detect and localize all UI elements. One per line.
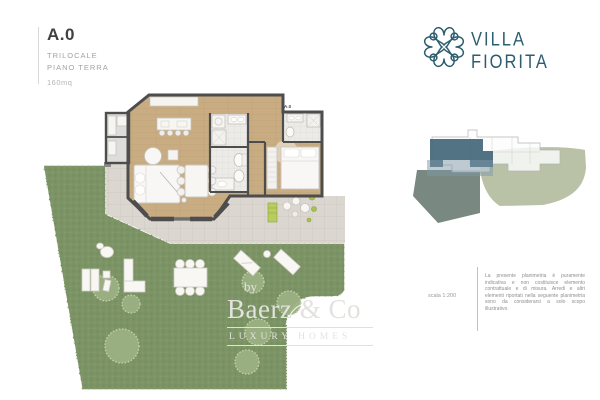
plan-unit-label: A.0 [284, 104, 292, 109]
stool [159, 130, 165, 136]
wardrobe [267, 147, 277, 189]
garden-sofa [124, 281, 145, 292]
brand-name-line1: VILLA [471, 29, 549, 51]
stool [183, 130, 189, 136]
pillow [301, 149, 316, 157]
disclaimer-text: La presente planimetria è puramente indi… [485, 273, 585, 313]
stool [175, 130, 181, 136]
header-divider [38, 27, 39, 84]
watermark-name: Baerz & Co [227, 295, 373, 324]
plant [307, 218, 311, 222]
small-table [292, 211, 298, 217]
header: A.0 TRILOCALE PIANO TERRA 160mq [47, 26, 109, 87]
unit-code: A.0 [47, 26, 109, 43]
bedroom [267, 140, 319, 189]
brand-flower-icon [419, 21, 469, 73]
siteplan-terrace-highlight [427, 160, 493, 176]
garden-sofa [124, 259, 133, 284]
sofa [134, 165, 180, 203]
unit-floor: PIANO TERRA [47, 62, 109, 74]
dining-table [185, 165, 208, 197]
kitchen-island [157, 118, 191, 130]
bathroom-topright [284, 113, 321, 141]
stool [167, 130, 173, 136]
siteplan-garden-dark [413, 170, 480, 223]
watermark: by Baerz & Co LUXURY HOMES [227, 280, 373, 346]
plant [312, 207, 317, 212]
unit-area: 160mq [47, 78, 109, 87]
armchair [145, 148, 162, 165]
green-lounger [268, 203, 277, 222]
bathroom-central [211, 114, 247, 191]
round-chair [283, 202, 291, 210]
side-table [168, 150, 178, 160]
legend-divider [477, 267, 478, 331]
brochure-page: A.0 A.0 TRILOCALE PIA [0, 0, 600, 400]
watermark-tagline: LUXURY HOMES [227, 327, 373, 346]
brand-name-line2: FIORITA [471, 51, 549, 73]
kitchen-counter [150, 97, 198, 106]
round-chair [301, 204, 310, 213]
garden-lounger [91, 269, 99, 291]
round-chair [292, 197, 300, 205]
scale-note: scala 1:200 [428, 293, 473, 299]
garden-dining-table [174, 268, 207, 287]
brand-name: VILLA FIORITA [471, 29, 549, 74]
site-plan [413, 130, 586, 223]
garden-lounger [82, 269, 90, 291]
unit-rooms: TRILOCALE [47, 50, 109, 62]
watermark-by: by [244, 280, 373, 293]
side-table [264, 251, 271, 258]
pillow [284, 149, 299, 157]
utility-rooms [106, 113, 129, 163]
